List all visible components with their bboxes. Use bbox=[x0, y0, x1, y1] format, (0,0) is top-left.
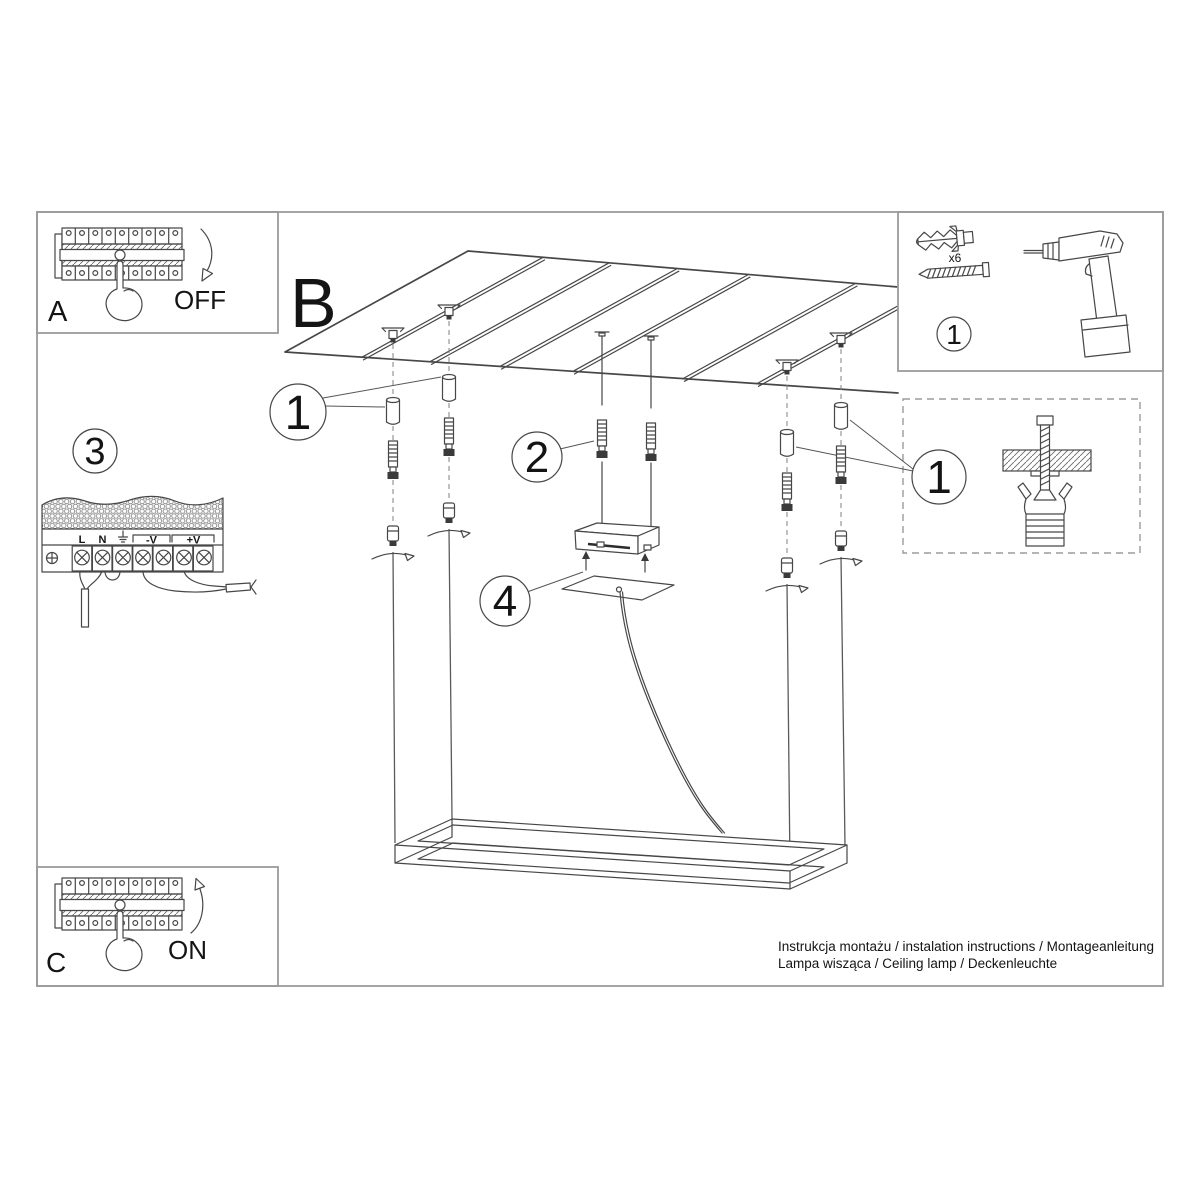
terminal-screws bbox=[72, 546, 213, 571]
step-b-label: B bbox=[290, 264, 337, 342]
cover-plate bbox=[562, 576, 674, 600]
terminal-label-vplus: +V bbox=[187, 535, 201, 547]
callout-4: 4 bbox=[493, 577, 517, 626]
terminal-label-vminus: -V bbox=[146, 535, 158, 547]
hanger-assembly-back-right bbox=[820, 333, 862, 566]
anchor-count-label: x6 bbox=[949, 251, 962, 265]
ground-icon bbox=[119, 531, 128, 542]
terminal-label-live: L bbox=[79, 534, 86, 546]
callout-3: 3 bbox=[84, 431, 105, 473]
instructions-line-1: Instrukcja montażu / instalation instruc… bbox=[778, 939, 1154, 954]
ceiling-plank-lines bbox=[362, 257, 929, 386]
mount-hole-icon bbox=[47, 553, 58, 564]
callout-1-tools: 1 bbox=[946, 319, 962, 350]
callouts: 1 2 4 bbox=[270, 377, 594, 626]
driver-wires bbox=[80, 571, 256, 627]
driver-box-drawing bbox=[562, 523, 674, 600]
callout-1-right-leaders bbox=[796, 420, 913, 471]
instruction-sheet: OFF A ON C x6 bbox=[0, 0, 1200, 1200]
instruction-drawing: OFF A ON C x6 bbox=[0, 0, 1200, 1200]
ceiling-drawing bbox=[285, 251, 929, 393]
on-label: ON bbox=[168, 935, 207, 965]
hanger-assembly-back-left bbox=[428, 305, 470, 538]
hanger-assembly-front-right bbox=[766, 360, 808, 593]
power-cable bbox=[620, 592, 725, 833]
callout-1-right: 1 bbox=[926, 451, 952, 503]
off-label: OFF bbox=[174, 285, 226, 315]
step-a-label: A bbox=[48, 296, 68, 328]
step-c-label: C bbox=[46, 947, 66, 978]
footer-text: Instrukcja montażu / instalation instruc… bbox=[778, 939, 1154, 971]
driver-mount-screws bbox=[595, 332, 658, 526]
callout-2: 2 bbox=[525, 433, 549, 482]
terminal-label-neutral: N bbox=[99, 534, 107, 546]
lamp-frame bbox=[395, 819, 847, 889]
callout-1-left: 1 bbox=[285, 387, 312, 440]
driver-wiring-drawing: 3 L N -V +V bbox=[42, 429, 256, 627]
instructions-line-2: Lampa wisząca / Ceiling lamp / Deckenleu… bbox=[778, 956, 1057, 971]
hanger-assembly-front-left bbox=[372, 328, 414, 561]
